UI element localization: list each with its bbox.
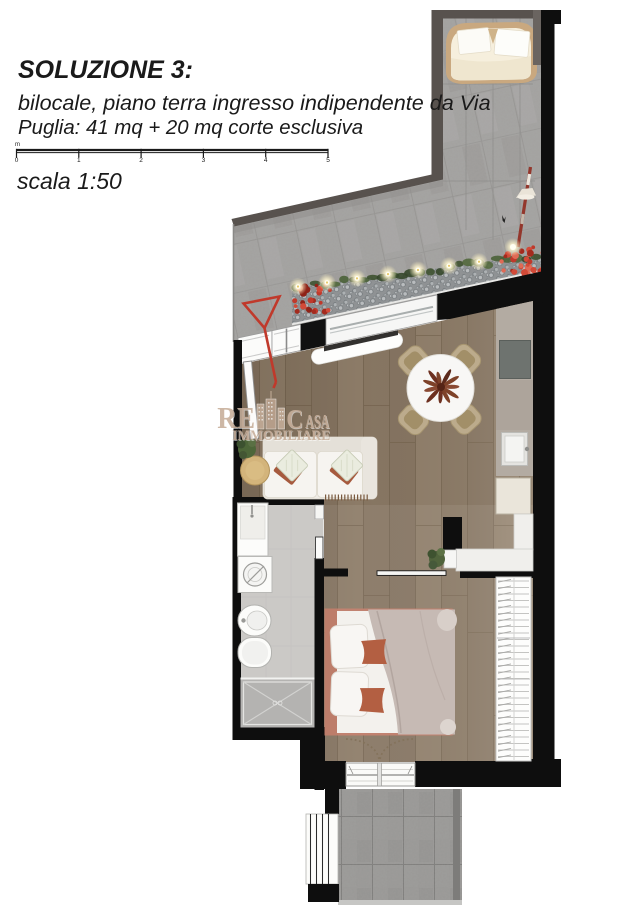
svg-text:2: 2 [139,157,143,164]
svg-text:1: 1 [77,157,81,164]
svg-text:m: m [15,142,20,148]
svg-text:IMMOBILIARE: IMMOBILIARE [232,428,330,444]
svg-text:3: 3 [202,157,206,164]
svg-text:4: 4 [264,157,268,164]
svg-text:5: 5 [326,157,330,164]
svg-text:0: 0 [15,157,19,164]
